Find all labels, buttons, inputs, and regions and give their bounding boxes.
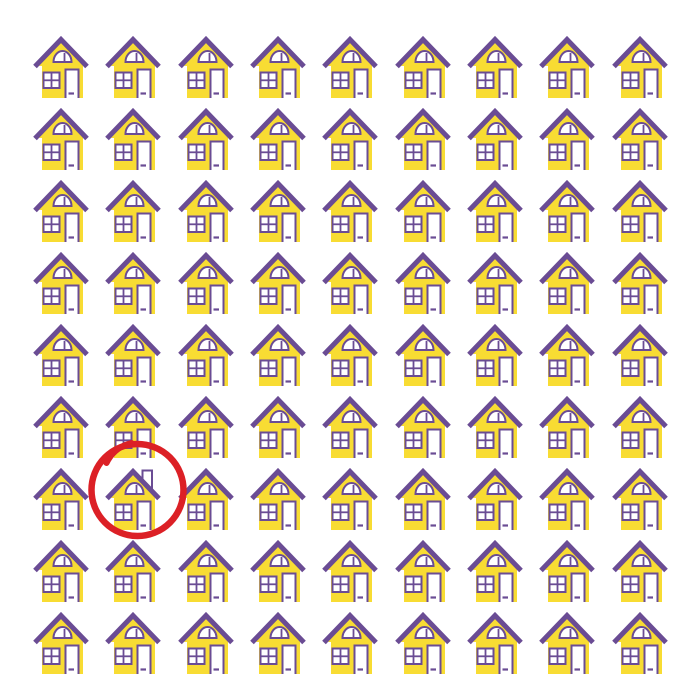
house-icon (104, 396, 162, 458)
house-icon (104, 108, 162, 170)
house-cell[interactable] (531, 319, 603, 391)
house-cell[interactable] (604, 463, 676, 535)
house-cell[interactable] (459, 247, 531, 319)
house-icon (177, 612, 235, 674)
house-icon (177, 36, 235, 98)
house-cell[interactable] (25, 535, 97, 607)
house-icon (394, 180, 452, 242)
house-icon (466, 108, 524, 170)
house-icon (104, 540, 162, 602)
house-cell[interactable] (604, 31, 676, 103)
house-icon (611, 324, 669, 386)
house-icon (177, 108, 235, 170)
house-cell[interactable] (242, 535, 314, 607)
house-cell[interactable] (531, 175, 603, 247)
house-cell[interactable] (25, 175, 97, 247)
house-cell[interactable] (387, 175, 459, 247)
house-cell[interactable] (604, 175, 676, 247)
house-cell[interactable] (170, 607, 242, 679)
house-icon (538, 612, 596, 674)
house-icon (249, 396, 307, 458)
house-cell[interactable] (459, 463, 531, 535)
house-icon (321, 108, 379, 170)
house-icon (177, 396, 235, 458)
house-icon (394, 36, 452, 98)
house-icon (394, 252, 452, 314)
house-cell[interactable] (387, 31, 459, 103)
house-cell[interactable] (604, 607, 676, 679)
house-cell[interactable] (25, 31, 97, 103)
house-cell[interactable] (531, 607, 603, 679)
house-icon (249, 36, 307, 98)
house-cell[interactable] (97, 103, 169, 175)
house-cell[interactable] (387, 103, 459, 175)
house-icon (32, 396, 90, 458)
house-cell[interactable] (531, 535, 603, 607)
house-cell[interactable] (242, 319, 314, 391)
house-cell[interactable] (387, 391, 459, 463)
house-icon (538, 396, 596, 458)
house-icon (466, 252, 524, 314)
house-cell[interactable] (459, 175, 531, 247)
house-icon (538, 468, 596, 530)
house-icon (32, 36, 90, 98)
house-icon (249, 252, 307, 314)
house-cell[interactable] (242, 463, 314, 535)
house-cell[interactable] (531, 247, 603, 319)
house-cell[interactable] (25, 607, 97, 679)
house-with-chimney-icon (104, 468, 162, 530)
house-icon (32, 468, 90, 530)
house-icon (611, 108, 669, 170)
house-icon (321, 36, 379, 98)
house-icon (538, 180, 596, 242)
house-cell[interactable] (387, 247, 459, 319)
house-icon (394, 468, 452, 530)
house-icon (321, 324, 379, 386)
house-icon (466, 36, 524, 98)
house-icon (177, 252, 235, 314)
house-cell[interactable] (314, 175, 386, 247)
house-icon (538, 252, 596, 314)
house-icon (249, 108, 307, 170)
house-icon (249, 540, 307, 602)
house-cell[interactable] (314, 391, 386, 463)
house-icon (177, 540, 235, 602)
house-cell[interactable] (170, 103, 242, 175)
house-icon (249, 468, 307, 530)
house-icon (611, 468, 669, 530)
house-icon (611, 540, 669, 602)
house-icon (104, 324, 162, 386)
house-icon (177, 468, 235, 530)
house-cell[interactable] (531, 391, 603, 463)
house-icon (321, 468, 379, 530)
house-cell[interactable] (459, 391, 531, 463)
house-cell[interactable] (604, 319, 676, 391)
house-cell[interactable] (387, 319, 459, 391)
house-icon (177, 324, 235, 386)
house-cell[interactable] (170, 391, 242, 463)
house-cell[interactable] (242, 31, 314, 103)
house-cell[interactable] (170, 535, 242, 607)
house-icon (104, 252, 162, 314)
house-icon (538, 540, 596, 602)
house-cell[interactable] (242, 175, 314, 247)
house-cell[interactable] (531, 103, 603, 175)
house-cell[interactable] (604, 103, 676, 175)
house-icon (466, 396, 524, 458)
house-icon (466, 540, 524, 602)
house-cell[interactable] (459, 319, 531, 391)
house-icon (32, 108, 90, 170)
house-icon (466, 324, 524, 386)
house-cell[interactable] (314, 31, 386, 103)
house-icon (611, 180, 669, 242)
house-cell[interactable] (242, 391, 314, 463)
house-icon (32, 612, 90, 674)
house-cell[interactable] (242, 103, 314, 175)
house-cell[interactable] (97, 535, 169, 607)
house-icon (104, 612, 162, 674)
house-icon (249, 612, 307, 674)
house-icon (466, 612, 524, 674)
house-icon (321, 252, 379, 314)
house-icon (538, 324, 596, 386)
house-cell[interactable] (604, 535, 676, 607)
house-cell[interactable] (314, 463, 386, 535)
house-icon (611, 36, 669, 98)
house-icon (249, 324, 307, 386)
house-icon (32, 540, 90, 602)
house-cell[interactable] (314, 247, 386, 319)
house-cell[interactable] (314, 607, 386, 679)
house-cell[interactable] (387, 607, 459, 679)
house-cell[interactable] (97, 247, 169, 319)
house-cell[interactable] (97, 607, 169, 679)
house-cell[interactable] (459, 607, 531, 679)
house-cell[interactable] (170, 31, 242, 103)
house-icon (466, 468, 524, 530)
house-icon (104, 36, 162, 98)
house-icon (321, 180, 379, 242)
house-cell[interactable] (387, 463, 459, 535)
house-cell[interactable] (25, 247, 97, 319)
house-icon (394, 324, 452, 386)
house-icon (177, 180, 235, 242)
house-cell[interactable] (459, 535, 531, 607)
house-cell[interactable] (604, 247, 676, 319)
house-cell[interactable] (170, 175, 242, 247)
house-cell[interactable] (459, 103, 531, 175)
house-icon (611, 612, 669, 674)
house-icon (466, 180, 524, 242)
house-cell[interactable] (170, 463, 242, 535)
house-icon (538, 36, 596, 98)
house-icon (394, 540, 452, 602)
house-cell[interactable] (25, 391, 97, 463)
house-cell[interactable] (387, 535, 459, 607)
house-cell[interactable] (314, 535, 386, 607)
house-icon (321, 396, 379, 458)
house-icon (32, 252, 90, 314)
house-cell[interactable] (25, 319, 97, 391)
house-cell[interactable] (97, 31, 169, 103)
house-cell[interactable] (25, 103, 97, 175)
house-icon (249, 180, 307, 242)
house-cell[interactable] (314, 319, 386, 391)
house-cell[interactable] (97, 391, 169, 463)
house-icon (394, 396, 452, 458)
house-icon (394, 612, 452, 674)
house-cell[interactable] (170, 247, 242, 319)
house-icon (611, 252, 669, 314)
house-cell[interactable] (242, 247, 314, 319)
house-cell[interactable] (459, 31, 531, 103)
house-cell[interactable] (25, 463, 97, 535)
house-cell[interactable] (604, 391, 676, 463)
house-icon (321, 540, 379, 602)
house-icon (321, 612, 379, 674)
house-icon (538, 108, 596, 170)
house-icon (104, 180, 162, 242)
house-cell[interactable] (314, 103, 386, 175)
puzzle-image (0, 0, 700, 700)
house-icon (32, 324, 90, 386)
house-cell[interactable] (97, 319, 169, 391)
house-cell[interactable] (97, 175, 169, 247)
house-cell[interactable] (531, 463, 603, 535)
odd-house-cell[interactable] (97, 463, 169, 535)
house-icon (32, 180, 90, 242)
house-cell[interactable] (170, 319, 242, 391)
house-icon (394, 108, 452, 170)
house-cell[interactable] (531, 31, 603, 103)
house-cell[interactable] (242, 607, 314, 679)
house-icon (611, 396, 669, 458)
